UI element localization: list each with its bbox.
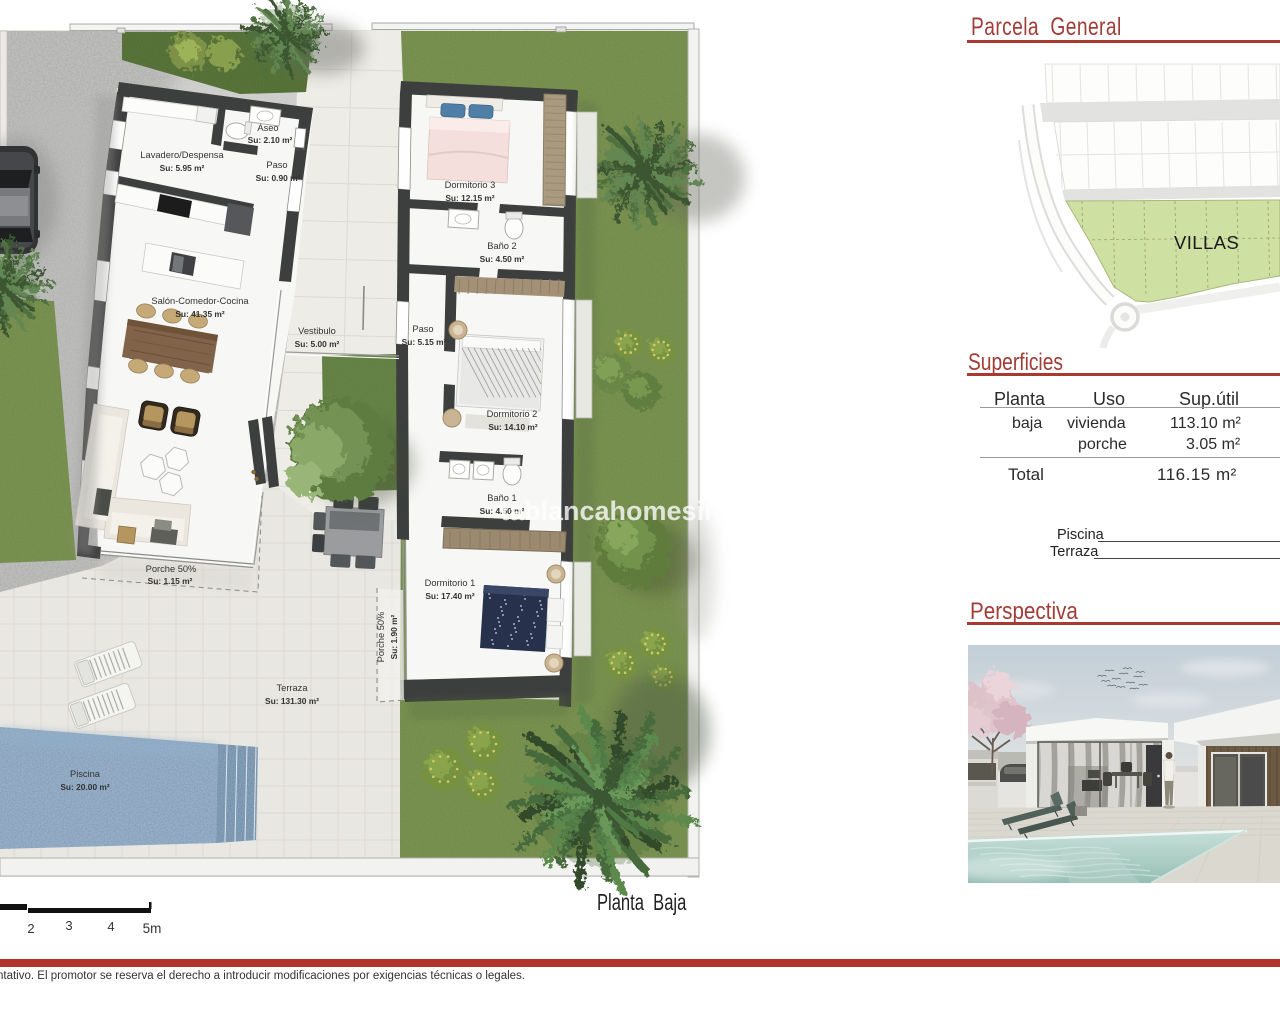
svg-text:Su: 41.35 m²: Su: 41.35 m² — [175, 309, 225, 319]
svg-text:Aseo: Aseo — [257, 123, 278, 133]
svg-text:Su: 5.95 m²: Su: 5.95 m² — [160, 163, 205, 173]
svg-text:Su: 14.10 m²: Su: 14.10 m² — [488, 422, 538, 432]
svg-text:5m: 5m — [143, 921, 162, 936]
svg-text:Baño 2: Baño 2 — [487, 241, 516, 251]
svg-text:3: 3 — [65, 918, 72, 933]
svg-text:Dormitorio 3: Dormitorio 3 — [445, 180, 496, 190]
svg-text:Su: 5.15 m²: Su: 5.15 m² — [402, 337, 447, 347]
svg-text:Salón-Comedor-Cocina: Salón-Comedor-Cocina — [151, 296, 249, 306]
svg-text:Piscina: Piscina — [70, 769, 101, 779]
svg-text:Su: 1.15 m²: Su: 1.15 m² — [148, 576, 193, 586]
svg-text:tablancahomesin: tablancahomesin — [500, 496, 721, 526]
svg-text:4: 4 — [107, 919, 114, 934]
svg-text:Su: 5.00 m²: Su: 5.00 m² — [295, 339, 340, 349]
svg-text:Porche 50%: Porche 50% — [146, 564, 197, 574]
svg-text:VILLAS: VILLAS — [1174, 232, 1239, 253]
svg-text:Vestibulo: Vestibulo — [298, 326, 336, 336]
svg-text:Porche 50%: Porche 50% — [376, 612, 386, 663]
svg-text:Dormitorio 1: Dormitorio 1 — [425, 578, 476, 588]
svg-text:Paso: Paso — [412, 324, 433, 334]
svg-text:Lavadero/Despensa: Lavadero/Despensa — [140, 150, 224, 160]
svg-text:Su: 17.40 m²: Su: 17.40 m² — [425, 591, 475, 601]
svg-text:Su: 2.10 m²: Su: 2.10 m² — [248, 135, 293, 145]
svg-text:Su: 12.15 m²: Su: 12.15 m² — [445, 193, 495, 203]
svg-text:2: 2 — [27, 921, 34, 936]
svg-text:Su: 1.90 m²: Su: 1.90 m² — [389, 614, 399, 659]
svg-text:Su: 4.50 m²: Su: 4.50 m² — [480, 254, 525, 264]
svg-text:Paso: Paso — [266, 160, 287, 170]
svg-text:Terraza: Terraza — [277, 683, 309, 693]
svg-text:Dormitorio 2: Dormitorio 2 — [487, 409, 538, 419]
svg-text:Su: 20.00 m²: Su: 20.00 m² — [60, 782, 110, 792]
svg-text:Su: 131.30 m²: Su: 131.30 m² — [265, 696, 319, 706]
svg-text:Su: 0.90 m²: Su: 0.90 m² — [256, 173, 301, 183]
